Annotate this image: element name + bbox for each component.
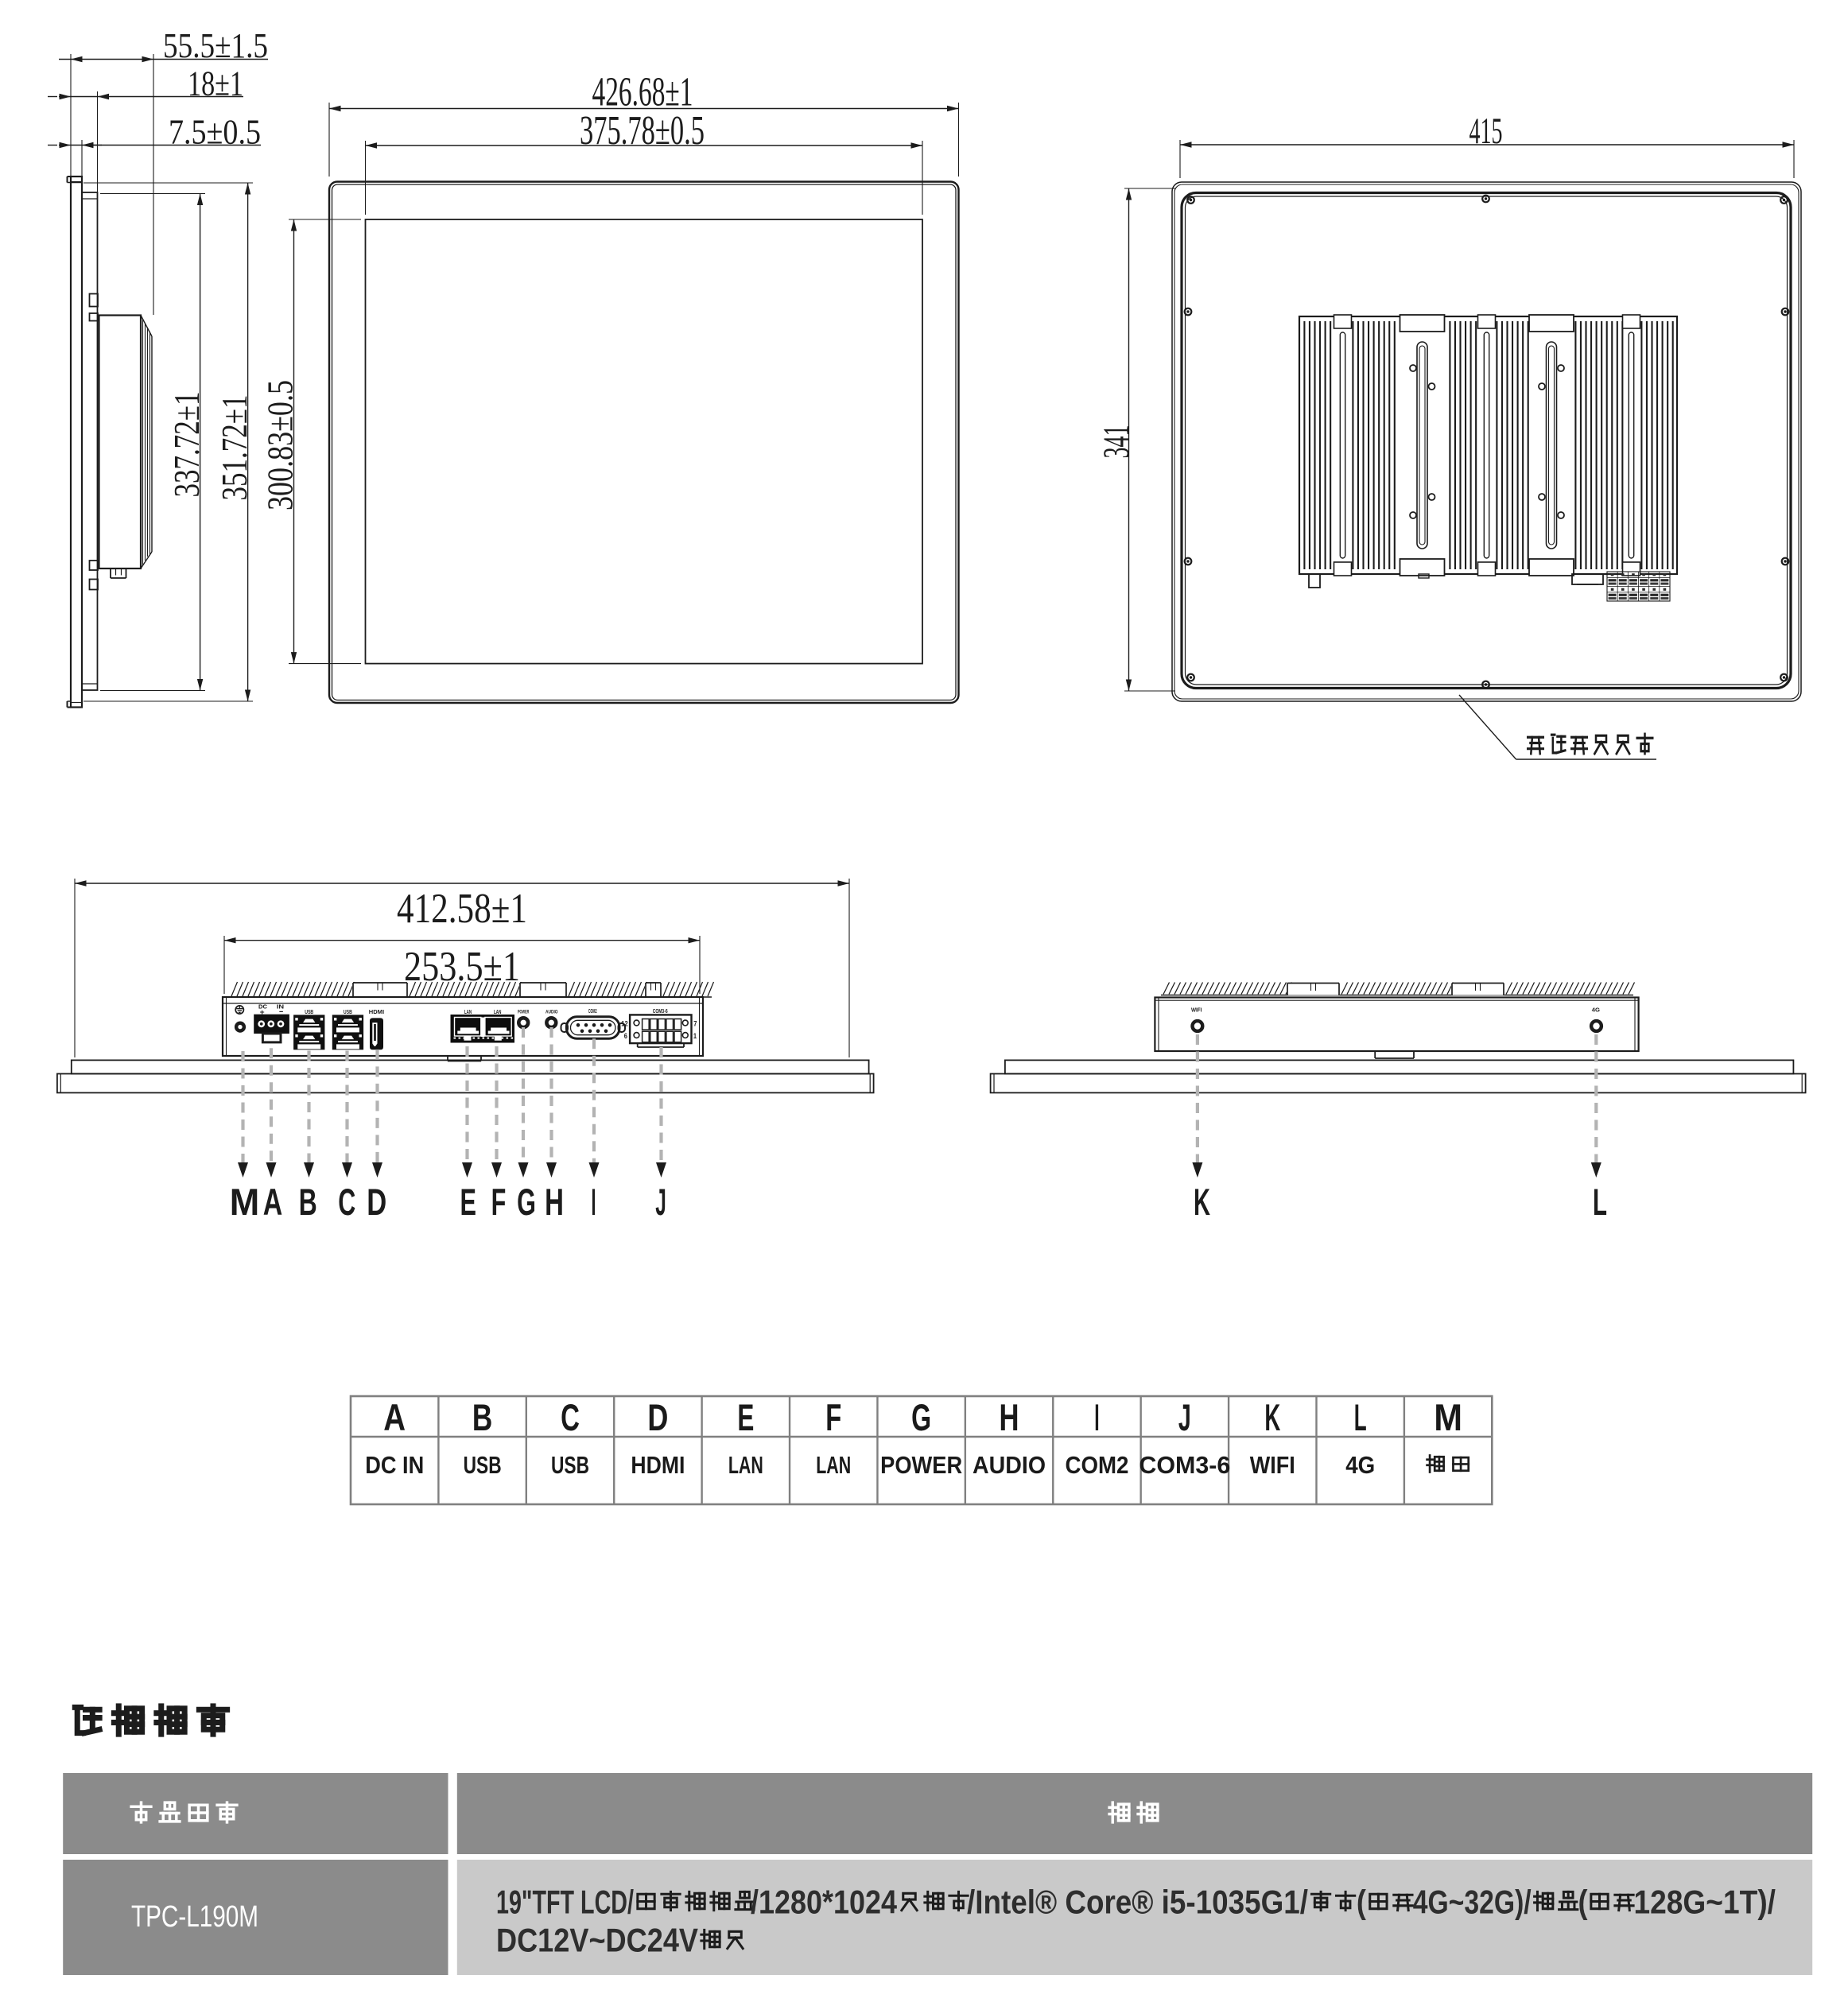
svg-text:G: G: [911, 1396, 931, 1438]
svg-text:HDMI: HDMI: [631, 1451, 685, 1479]
svg-text:1: 1: [693, 1032, 697, 1040]
svg-text:M: M: [230, 1181, 260, 1223]
svg-text:4G: 4G: [1592, 1008, 1601, 1014]
svg-text:USB: USB: [464, 1451, 502, 1479]
svg-text:D: D: [647, 1396, 668, 1438]
svg-text:B: B: [299, 1181, 317, 1223]
svg-text:B: B: [472, 1396, 492, 1438]
svg-text:DC12V~DC24V: DC12V~DC24V: [496, 1922, 698, 1959]
svg-text:LAN: LAN: [816, 1451, 851, 1479]
svg-text:7: 7: [693, 1020, 697, 1028]
svg-text:(: (: [1357, 1884, 1366, 1921]
svg-text:H: H: [545, 1181, 564, 1223]
svg-text:375.78±0.5: 375.78±0.5: [580, 108, 705, 153]
svg-text:HDMI: HDMI: [369, 1010, 384, 1015]
svg-text:C: C: [338, 1181, 355, 1223]
svg-text:19"TFT LCD/: 19"TFT LCD/: [496, 1884, 634, 1921]
svg-text:128G~1T)/: 128G~1T)/: [1634, 1884, 1776, 1921]
svg-text:WIFI: WIFI: [1191, 1008, 1202, 1014]
svg-text:USB: USB: [305, 1010, 313, 1015]
svg-text:253.5±1: 253.5±1: [404, 944, 520, 990]
svg-text:J: J: [1178, 1396, 1191, 1438]
svg-text:351.72±1: 351.72±1: [214, 395, 254, 501]
svg-text:12: 12: [621, 1020, 627, 1028]
svg-text:4G~32G)/: 4G~32G)/: [1413, 1884, 1532, 1921]
svg-text:J: J: [655, 1181, 666, 1223]
svg-text:D: D: [367, 1181, 386, 1223]
svg-text:POWER: POWER: [518, 1010, 530, 1015]
svg-text:G: G: [517, 1181, 536, 1223]
svg-text:LAN: LAN: [728, 1451, 763, 1479]
svg-text:M: M: [1434, 1396, 1462, 1438]
svg-text:H: H: [1000, 1396, 1019, 1438]
svg-text:C: C: [561, 1396, 580, 1438]
svg-text:A: A: [383, 1396, 406, 1438]
svg-text:E: E: [460, 1181, 477, 1223]
svg-text:POWER: POWER: [880, 1451, 962, 1479]
svg-text:E: E: [737, 1396, 754, 1438]
svg-text:412.58±1: 412.58±1: [397, 886, 527, 932]
svg-text:I: I: [1094, 1396, 1099, 1438]
svg-text:USB: USB: [344, 1010, 352, 1015]
svg-text:341: 341: [1096, 425, 1137, 459]
svg-text:AUDIO: AUDIO: [973, 1451, 1046, 1479]
svg-text:6: 6: [624, 1032, 627, 1040]
svg-text:415: 415: [1469, 111, 1503, 152]
svg-text:/Intel® Core® i5-1035G1/: /Intel® Core® i5-1035G1/: [967, 1884, 1308, 1921]
svg-text:/1280*1024: /1280*1024: [751, 1884, 898, 1921]
svg-text:DC IN: DC IN: [365, 1451, 424, 1479]
svg-text:337.72±1: 337.72±1: [166, 392, 207, 498]
svg-text:A: A: [263, 1181, 283, 1223]
svg-text:L: L: [1354, 1396, 1367, 1438]
svg-text:AUDIO: AUDIO: [545, 1010, 558, 1015]
svg-text:COM3-6: COM3-6: [653, 1009, 668, 1015]
svg-text:F: F: [491, 1181, 507, 1223]
svg-text:(: (: [1578, 1884, 1588, 1921]
svg-text:COM2: COM2: [588, 1009, 597, 1015]
svg-text:LAN: LAN: [494, 1010, 501, 1015]
svg-text:COM2: COM2: [1065, 1451, 1128, 1479]
svg-text:WIFI: WIFI: [1250, 1451, 1295, 1479]
svg-text:I: I: [592, 1181, 596, 1223]
svg-text:K: K: [1194, 1181, 1210, 1223]
svg-text:K: K: [1264, 1396, 1280, 1438]
svg-text:L: L: [1593, 1181, 1607, 1223]
svg-text:USB: USB: [551, 1451, 589, 1479]
svg-text:F: F: [825, 1396, 841, 1438]
svg-text:LAN: LAN: [464, 1010, 472, 1015]
svg-text:COM3-6: COM3-6: [1139, 1451, 1230, 1479]
svg-text:4G: 4G: [1345, 1451, 1375, 1479]
svg-text:TPC-L190M: TPC-L190M: [131, 1900, 258, 1934]
